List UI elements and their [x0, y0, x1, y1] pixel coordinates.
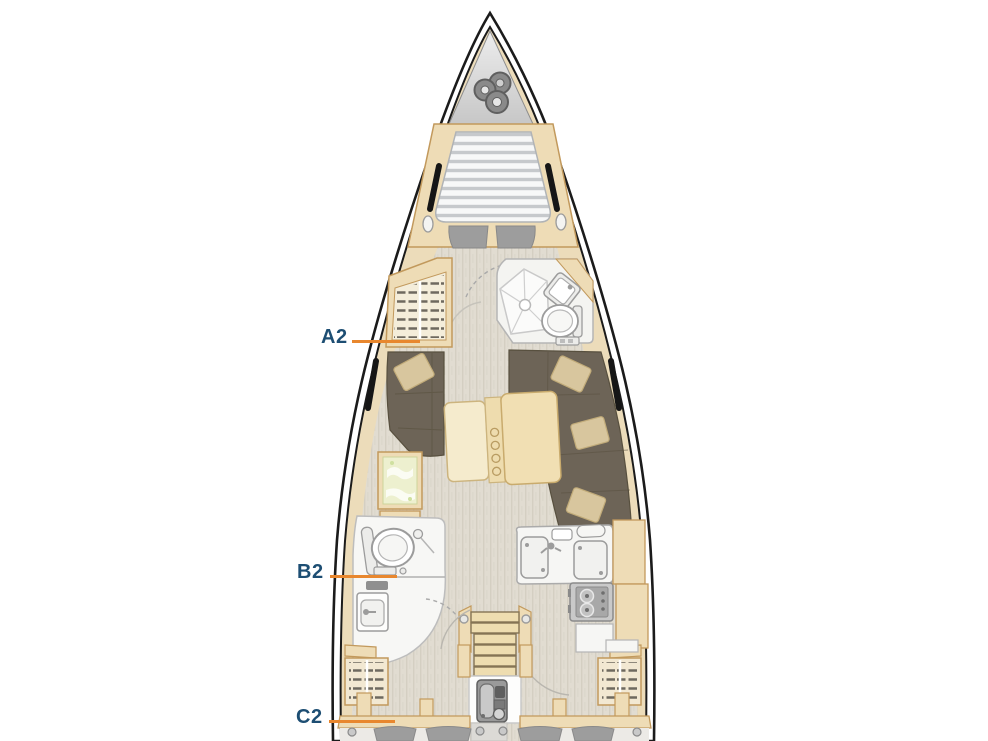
engine-icon [477, 680, 507, 722]
sink-icon [357, 593, 388, 631]
shelf [366, 581, 388, 590]
berth-pillow [374, 727, 416, 741]
stair-side-cabinet [458, 645, 470, 677]
berth-pillow [518, 727, 562, 741]
berth-pillow [426, 727, 471, 741]
sink-icon [521, 537, 548, 578]
label-c2: C2 [296, 707, 323, 727]
grab-handle-icon [522, 615, 530, 623]
handle-icon [556, 214, 566, 230]
forward-head [497, 259, 593, 345]
yacht-floor-plan: A2 B2 C2 [0, 0, 988, 741]
table-folded-leaf [444, 401, 489, 482]
grab-handle-icon [460, 615, 468, 623]
galley-cabinet [616, 584, 648, 648]
stove-burners-icon [568, 583, 613, 621]
cabinet-step [345, 645, 376, 658]
companionway-stairs-icon [471, 612, 519, 676]
drawer-front [606, 640, 638, 652]
berth-side-cabinet [357, 693, 371, 719]
berth-side-cabinet [420, 699, 433, 718]
label-b2: B2 [297, 562, 324, 582]
label-c2-leader-line [329, 720, 395, 723]
label-a2-leader-line [352, 340, 420, 343]
berth-pillow [496, 226, 535, 248]
v-berth-mattress-icon [436, 132, 551, 222]
salon-table [444, 391, 562, 488]
handle-icon [423, 216, 433, 232]
berth-pillow [572, 727, 614, 741]
label-b2-leader-line [330, 575, 397, 578]
stair-side-cabinet [520, 645, 532, 677]
berth-side-cabinet [553, 699, 566, 718]
label-a2: A2 [321, 327, 348, 347]
berth-pillow [449, 226, 488, 248]
floor-plan-drawing [0, 0, 988, 741]
table-main-leaf [501, 391, 562, 485]
galley-cabinet [613, 520, 645, 584]
berth-side-cabinet [615, 693, 629, 719]
